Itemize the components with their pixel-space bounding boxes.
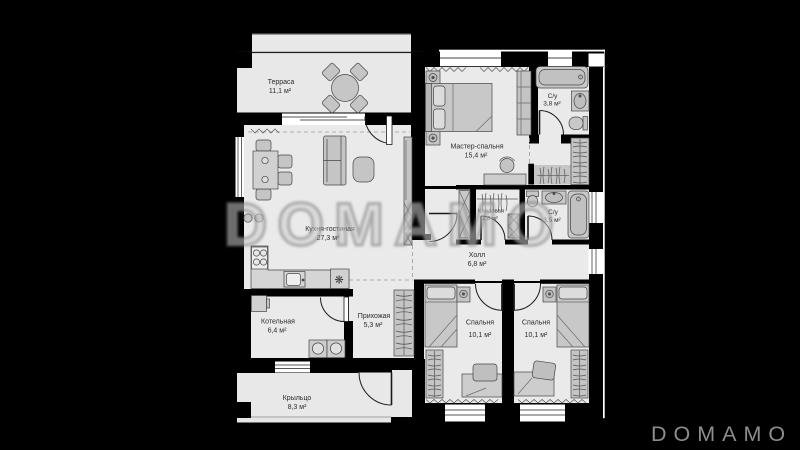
svg-text:15,4 м²: 15,4 м² bbox=[465, 153, 488, 160]
svg-text:10,1 м²: 10,1 м² bbox=[469, 332, 492, 339]
svg-text:Прихожая: Прихожая bbox=[358, 313, 391, 320]
svg-text:С/у: С/у bbox=[548, 93, 559, 100]
svg-text:6,4 м²: 6,4 м² bbox=[268, 328, 287, 335]
svg-text:8,3 м²: 8,3 м² bbox=[288, 404, 307, 411]
svg-text:Спальня: Спальня bbox=[522, 320, 550, 327]
svg-text:❋: ❋ bbox=[335, 275, 344, 287]
svg-text:Крыльцо: Крыльцо bbox=[283, 395, 312, 402]
svg-text:10,1 м²: 10,1 м² bbox=[525, 332, 548, 339]
svg-text:6,8 м²: 6,8 м² bbox=[468, 261, 487, 268]
svg-text:Спальня: Спальня bbox=[466, 320, 494, 327]
svg-text:Котельная: Котельная bbox=[261, 319, 295, 326]
svg-text:Терраса: Терраса bbox=[268, 79, 295, 86]
svg-text:DOMAMO: DOMAMO bbox=[224, 191, 564, 258]
svg-text:Мастер-спальня: Мастер-спальня bbox=[450, 144, 503, 151]
svg-text:DOMAMO: DOMAMO bbox=[651, 422, 792, 446]
svg-text:3,8 м²: 3,8 м² bbox=[543, 101, 561, 108]
svg-text:5,3 м²: 5,3 м² bbox=[364, 322, 383, 329]
svg-text:11,1 м²: 11,1 м² bbox=[269, 88, 292, 95]
